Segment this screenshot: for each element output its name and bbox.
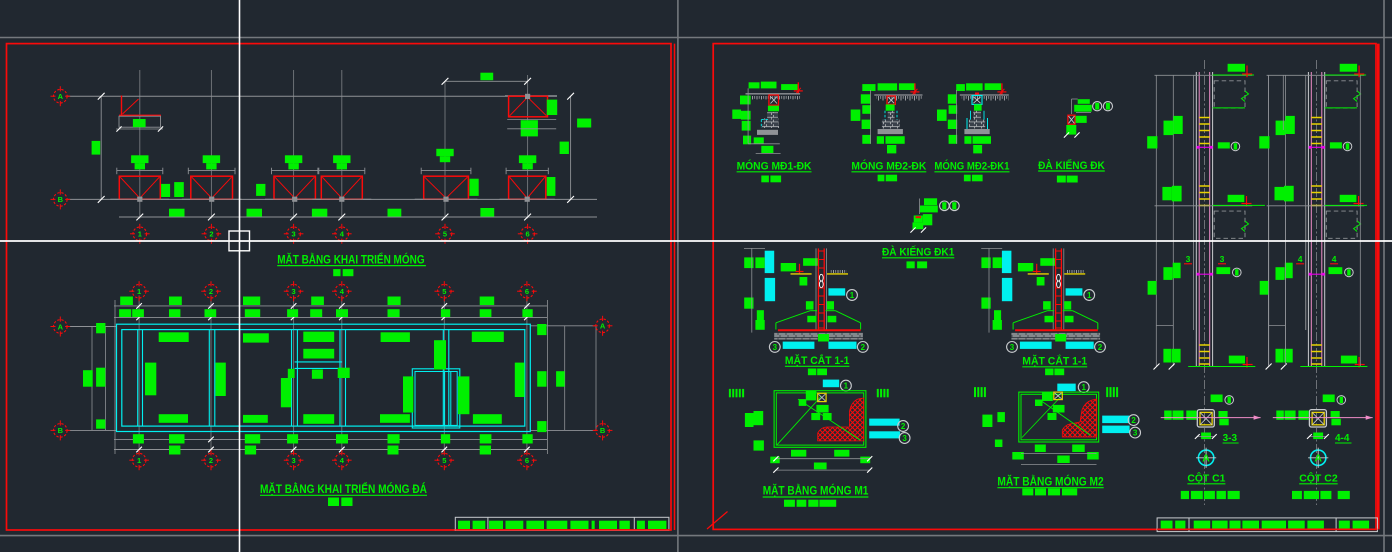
- svg-text:A: A: [1202, 453, 1210, 465]
- svg-text:3-3: 3-3: [1223, 433, 1238, 444]
- svg-text:MÓNG MĐ2-ĐK1: MÓNG MĐ2-ĐK1: [934, 160, 1009, 173]
- svg-text:B: B: [58, 426, 64, 435]
- svg-text:MÓNG MĐ2-ĐK: MÓNG MĐ2-ĐK: [851, 160, 926, 173]
- svg-text:A: A: [600, 322, 606, 331]
- svg-text:3: 3: [1186, 254, 1191, 264]
- svg-text:6: 6: [526, 230, 530, 239]
- svg-text:3: 3: [1133, 429, 1138, 438]
- svg-text:6: 6: [525, 287, 529, 296]
- svg-text:ĐÀ KIẾNG ĐK: ĐÀ KIẾNG ĐK: [1038, 159, 1105, 172]
- svg-text:2: 2: [1131, 416, 1136, 425]
- svg-text:ĐÀ KIẾNG ĐK1: ĐÀ KIẾNG ĐK1: [882, 245, 954, 258]
- svg-text:1: 1: [137, 287, 141, 296]
- svg-text:5: 5: [442, 287, 446, 296]
- svg-text:MẶT BẰNG KHAI TRIỂN MÓNG ĐÁ: MẶT BẰNG KHAI TRIỂN MÓNG ĐÁ: [260, 481, 427, 496]
- svg-text:4: 4: [1298, 254, 1303, 264]
- svg-text:2: 2: [1098, 343, 1103, 352]
- svg-text:MÓNG MĐ1-ĐK: MÓNG MĐ1-ĐK: [737, 160, 812, 173]
- svg-text:A: A: [58, 322, 64, 331]
- svg-text:MẶT BẰNG MÓNG M1: MẶT BẰNG MÓNG M1: [763, 485, 869, 498]
- svg-text:CỘT C1: CỘT C1: [1187, 472, 1225, 485]
- svg-text:5: 5: [443, 230, 447, 239]
- svg-text:4-4: 4-4: [1335, 433, 1350, 444]
- svg-text:2: 2: [861, 343, 866, 352]
- svg-text:3: 3: [773, 343, 778, 352]
- svg-text:2: 2: [901, 422, 906, 431]
- svg-text:1: 1: [137, 456, 141, 465]
- svg-text:3: 3: [1010, 343, 1015, 352]
- svg-text:1: 1: [1087, 291, 1092, 300]
- svg-text:A: A: [1314, 453, 1322, 465]
- svg-text:5: 5: [442, 456, 446, 465]
- svg-text:3: 3: [292, 456, 296, 465]
- svg-text:3: 3: [1220, 254, 1225, 264]
- svg-text:CỘT C2: CỘT C2: [1299, 472, 1338, 485]
- svg-text:1: 1: [850, 291, 855, 300]
- svg-text:2: 2: [209, 287, 213, 296]
- svg-text:6: 6: [525, 456, 529, 465]
- svg-text:3: 3: [292, 230, 296, 239]
- svg-text:MẶT CẮT 1-1: MẶT CẮT 1-1: [1022, 355, 1087, 368]
- svg-text:A: A: [58, 92, 64, 101]
- svg-text:1: 1: [138, 230, 142, 239]
- svg-text:B: B: [600, 426, 606, 435]
- svg-text:2: 2: [209, 230, 213, 239]
- svg-text:MẶT CẮT 1-1: MẶT CẮT 1-1: [785, 354, 850, 367]
- svg-text:4: 4: [1332, 254, 1337, 264]
- svg-text:2: 2: [209, 456, 213, 465]
- svg-text:3: 3: [292, 287, 296, 296]
- svg-text:MẶT BẰNG KHAI TRIỂN MÓNG: MẶT BẰNG KHAI TRIỂN MÓNG: [277, 253, 424, 266]
- svg-text:B: B: [58, 195, 64, 204]
- svg-text:1: 1: [1081, 383, 1086, 392]
- svg-text:MẶT BẰNG MÓNG M2: MẶT BẰNG MÓNG M2: [997, 475, 1103, 488]
- svg-text:3: 3: [902, 434, 907, 443]
- svg-text:1: 1: [844, 382, 849, 391]
